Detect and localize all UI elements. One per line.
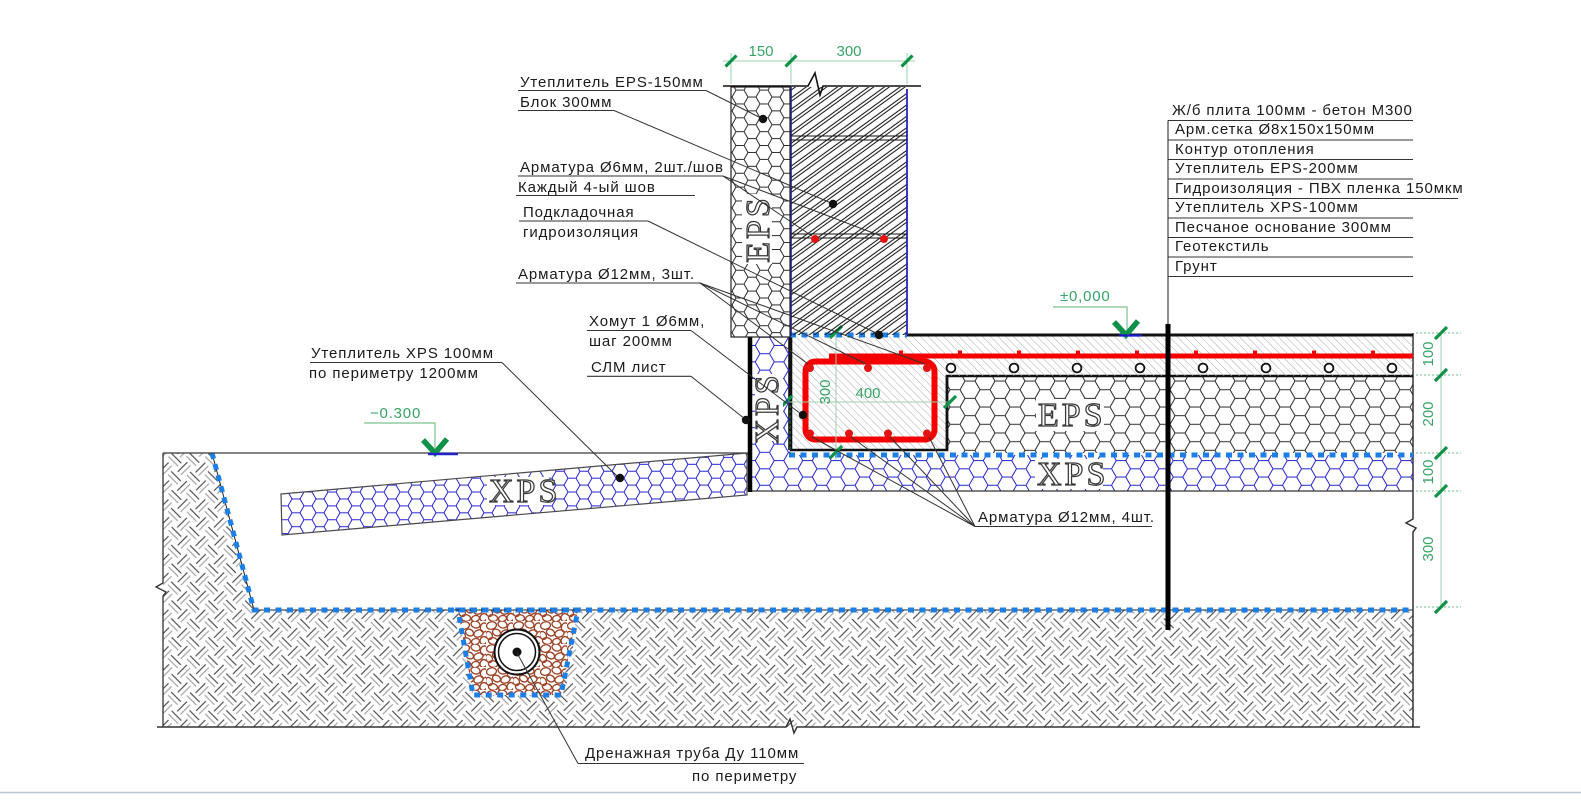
svg-text:Утеплитель EPS-150мм: Утеплитель EPS-150мм: [520, 74, 704, 91]
svg-text:400: 400: [855, 385, 880, 402]
svg-text:150: 150: [748, 43, 773, 60]
svg-text:100: 100: [1420, 341, 1437, 366]
svg-text:Утеплитель EPS-200мм: Утеплитель EPS-200мм: [1175, 160, 1359, 177]
svg-text:200: 200: [1420, 401, 1437, 426]
svg-text:300: 300: [817, 379, 834, 404]
svg-text:Подкладочная: Подкладочная: [523, 204, 635, 221]
svg-text:Гидроизоляция - ПВХ пленка 150: Гидроизоляция - ПВХ пленка 150мкм: [1175, 180, 1464, 197]
svg-text:−0.300: −0.300: [370, 405, 421, 422]
svg-text:Геотекстиль: Геотекстиль: [1175, 238, 1269, 255]
svg-text:по периметру 1200мм: по периметру 1200мм: [309, 365, 479, 382]
svg-text:Каждый 4-ый шов: Каждый 4-ый шов: [518, 179, 656, 196]
svg-text:Утеплитель XPS 100мм: Утеплитель XPS 100мм: [311, 345, 494, 362]
svg-text:СЛМ лист: СЛМ лист: [591, 359, 667, 376]
svg-text:EPS: EPS: [1038, 397, 1106, 434]
svg-text:по периметру: по периметру: [692, 768, 797, 785]
svg-text:Хомут 1 Ø6мм,: Хомут 1 Ø6мм,: [589, 313, 705, 330]
svg-text:Грунт: Грунт: [1175, 258, 1218, 275]
svg-text:Арм.сетка Ø8х150х150мм: Арм.сетка Ø8х150х150мм: [1175, 121, 1375, 138]
svg-text:Ж/б плита 100мм - бетон М300: Ж/б плита 100мм - бетон М300: [1172, 102, 1413, 119]
svg-text:Дренажная труба Ду 110мм: Дренажная труба Ду 110мм: [585, 745, 799, 762]
svg-text:гидроизоляция: гидроизоляция: [523, 224, 639, 241]
svg-text:100: 100: [1420, 459, 1437, 484]
svg-text:Арматура Ø12мм, 4шт.: Арматура Ø12мм, 4шт.: [978, 509, 1155, 526]
svg-text:Блок 300мм: Блок 300мм: [520, 94, 612, 111]
svg-text:±0,000: ±0,000: [1060, 288, 1111, 305]
svg-text:XPS: XPS: [1037, 456, 1108, 493]
svg-text:Арматура Ø6мм, 2шт./шов: Арматура Ø6мм, 2шт./шов: [520, 159, 724, 176]
svg-text:XPS: XPS: [489, 473, 560, 510]
svg-text:шаг 200мм: шаг 200мм: [589, 333, 673, 350]
svg-text:300: 300: [836, 43, 861, 60]
svg-text:Арматура Ø12мм, 3шт.: Арматура Ø12мм, 3шт.: [518, 266, 695, 283]
svg-text:Контур отопления: Контур отопления: [1175, 141, 1315, 158]
svg-text:EPS: EPS: [740, 195, 777, 263]
svg-text:XPS: XPS: [749, 372, 786, 443]
svg-text:300: 300: [1420, 536, 1437, 561]
svg-text:Песчаное основание 300мм: Песчаное основание 300мм: [1175, 219, 1392, 236]
svg-text:Утеплитель XPS-100мм: Утеплитель XPS-100мм: [1175, 199, 1359, 216]
